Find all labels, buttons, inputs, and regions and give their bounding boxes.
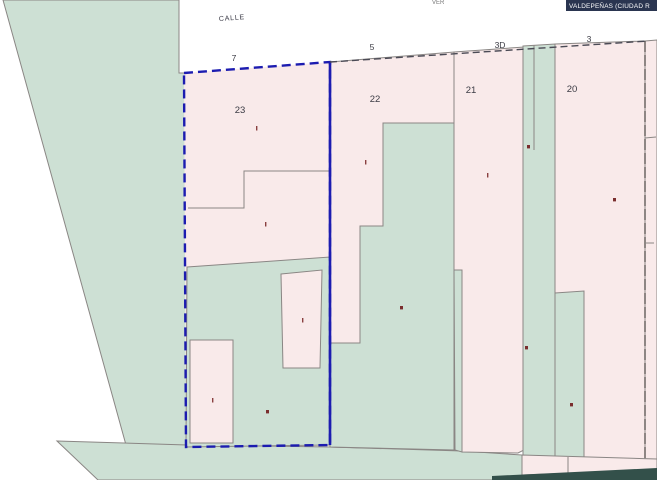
courtyard-dot-icon xyxy=(527,145,530,148)
construction-mark-icon xyxy=(302,318,303,323)
street-name-cutoff: VER xyxy=(432,0,445,6)
house-number-3: 3 xyxy=(587,34,592,44)
construction-mark-icon xyxy=(256,126,257,131)
parcel-23-building-bottomleft xyxy=(190,340,233,443)
parcel-number-22: 22 xyxy=(370,94,381,105)
construction-mark-icon xyxy=(487,173,488,178)
cadastral-map-canvas[interactable]: CALLE VER 7 5 3D 3 23 22 21 20 VALDEPEÑA… xyxy=(0,0,657,480)
parcel-east-sliver xyxy=(645,40,657,468)
parcel-number-20: 20 xyxy=(567,84,578,95)
cadastral-map-viewport[interactable]: CALLE VER 7 5 3D 3 23 22 21 20 VALDEPEÑA… xyxy=(0,0,657,480)
municipality-badge-label: VALDEPEÑAS (CIUDAD R xyxy=(569,1,650,10)
house-number-5: 5 xyxy=(370,42,375,52)
parcel-21[interactable] xyxy=(454,47,524,453)
parcel-20-courtyard xyxy=(555,291,584,466)
parcel-23-building-right xyxy=(281,270,322,368)
courtyard-dot-icon xyxy=(570,403,573,406)
parcel-21-courtyard-sliver xyxy=(454,270,462,452)
courtyard-dot-icon xyxy=(613,198,616,201)
courtyard-dot-icon xyxy=(400,306,403,309)
construction-mark-icon xyxy=(212,398,213,403)
courtyard-strip xyxy=(523,44,555,468)
house-number-7: 7 xyxy=(232,53,237,63)
courtyard-dot-icon xyxy=(525,346,528,349)
municipality-badge: VALDEPEÑAS (CIUDAD R xyxy=(566,0,657,11)
house-number-3d: 3D xyxy=(495,40,506,50)
parcel-number-23: 23 xyxy=(235,105,246,116)
courtyard-dot-icon xyxy=(266,410,269,413)
construction-mark-icon xyxy=(365,160,366,165)
parcel-number-21: 21 xyxy=(466,85,477,96)
parcel-23-group[interactable] xyxy=(184,62,330,447)
construction-mark-icon xyxy=(265,222,266,227)
